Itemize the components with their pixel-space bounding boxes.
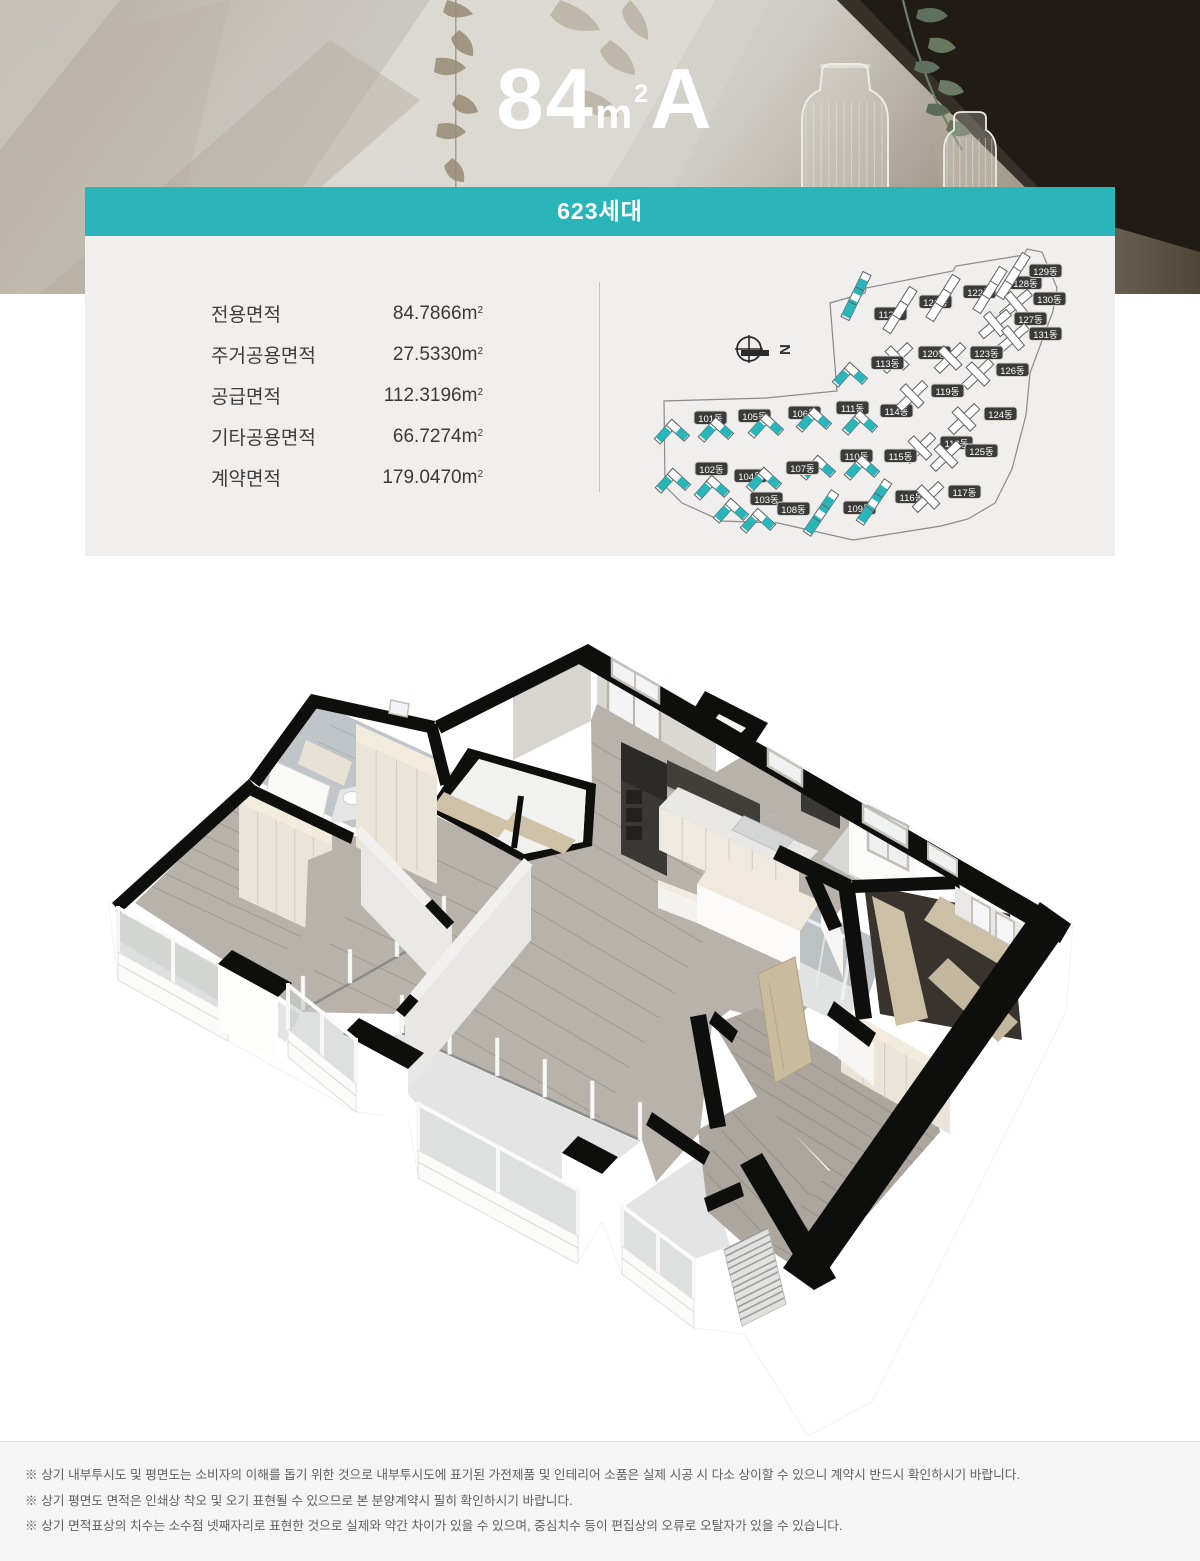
svg-text:123동: 123동 [974,349,999,360]
svg-text:115동: 115동 [889,452,913,463]
svg-text:127동: 127동 [1018,315,1043,326]
svg-text:125동: 125동 [969,447,994,458]
svg-text:107동: 107동 [790,464,815,475]
svg-text:129동: 129동 [1033,267,1058,278]
svg-text:113동: 113동 [876,359,900,370]
svg-text:103동: 103동 [754,495,779,506]
svg-text:128동: 128동 [1013,279,1038,290]
svg-text:117동: 117동 [953,488,977,499]
svg-text:N: N [777,344,794,355]
svg-text:108동: 108동 [781,505,806,516]
svg-text:131동: 131동 [1033,330,1058,341]
svg-text:126동: 126동 [1000,366,1025,377]
svg-text:124동: 124동 [988,410,1013,421]
svg-text:102동: 102동 [699,465,724,476]
svg-text:119동: 119동 [936,387,960,398]
svg-text:130동: 130동 [1037,295,1062,306]
